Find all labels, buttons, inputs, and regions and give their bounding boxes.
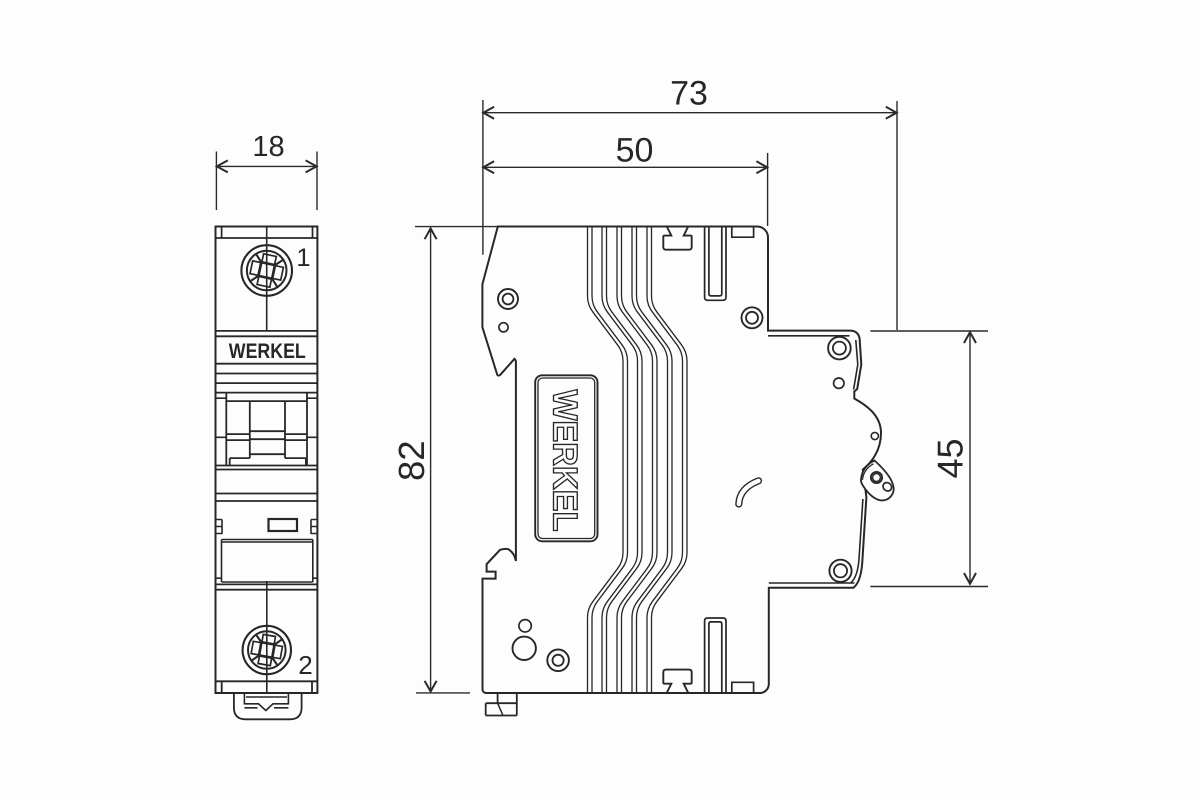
svg-text:45: 45 [930,438,971,478]
svg-text:1: 1 [296,244,310,272]
svg-text:WERKEL: WERKEL [229,340,306,363]
svg-text:73: 73 [670,74,708,112]
svg-text:50: 50 [616,132,654,170]
svg-text:2: 2 [298,650,312,680]
svg-text:18: 18 [252,131,284,163]
svg-text:WERKEL: WERKEL [546,390,584,532]
svg-text:82: 82 [391,440,432,481]
